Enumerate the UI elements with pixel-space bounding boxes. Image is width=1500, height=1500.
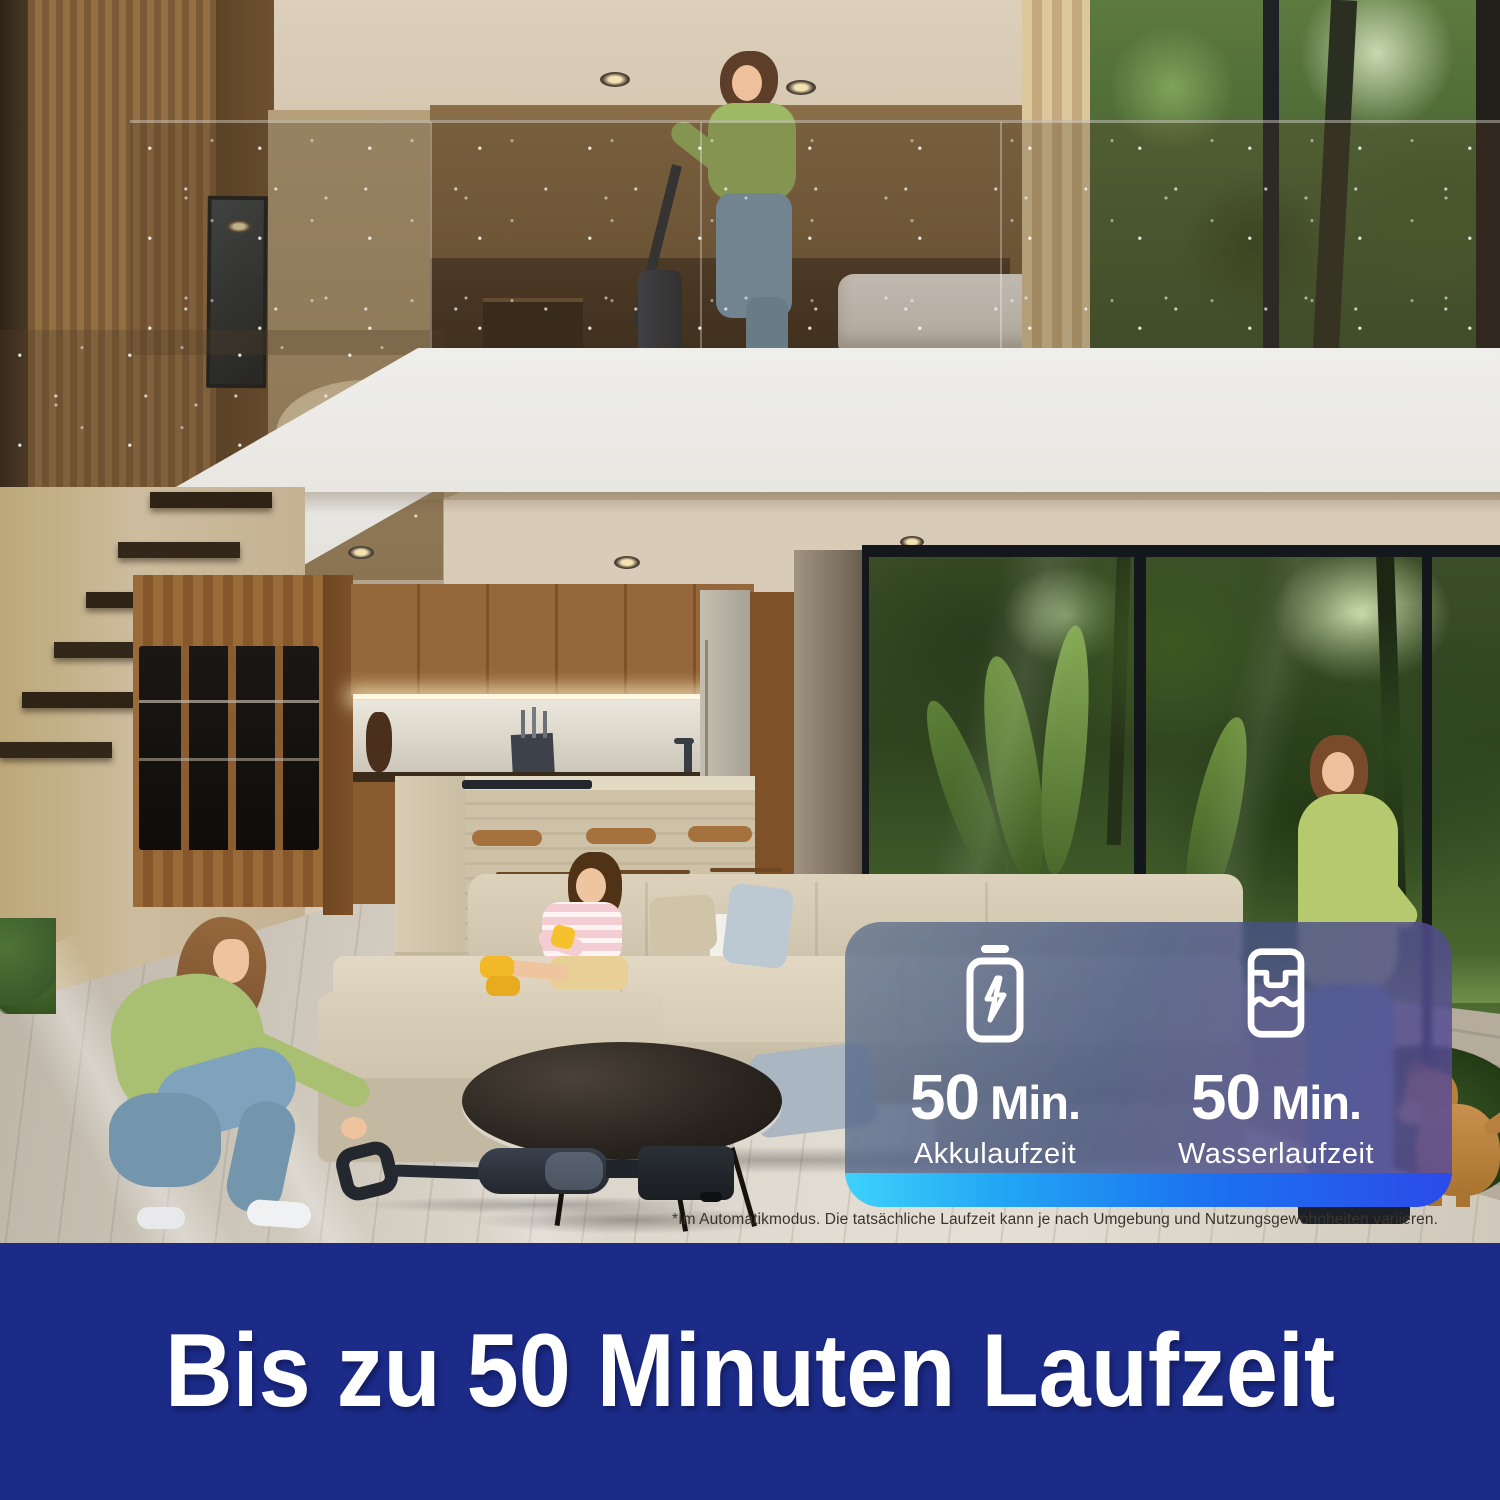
faucet-spout xyxy=(674,738,694,744)
water-tank-icon xyxy=(1245,944,1307,1040)
cooktop xyxy=(462,780,592,789)
water-tank-stat-icon-cell xyxy=(1142,944,1410,1044)
ceiling-light xyxy=(614,556,640,569)
child-sock xyxy=(480,956,514,978)
oven-handle xyxy=(139,700,319,703)
woman-sock xyxy=(137,1207,185,1229)
under-cabinet-led xyxy=(353,694,752,699)
bar-stool xyxy=(586,828,656,844)
woman-face xyxy=(732,65,762,101)
throw-pillow xyxy=(721,882,794,969)
ceiling-light xyxy=(348,546,374,559)
oven-divider xyxy=(228,646,236,850)
battery-runtime-number: 50 xyxy=(910,1061,979,1133)
card-accent-strip xyxy=(845,1173,1452,1207)
bar-stool xyxy=(688,826,752,842)
bar-stool xyxy=(472,830,542,846)
oven-divider xyxy=(275,646,283,850)
knife xyxy=(521,710,525,738)
wood-column xyxy=(323,575,353,915)
stair-tread xyxy=(22,692,144,708)
water-runtime-value: 50Min. xyxy=(1142,1065,1410,1129)
kitchen-vase xyxy=(366,712,392,772)
woman-jeans-hip xyxy=(109,1093,221,1187)
vacuum-neck xyxy=(606,1160,640,1178)
child-on-sofa xyxy=(480,850,650,1010)
battery-stat-icon-cell xyxy=(865,944,1125,1044)
island-end-cap xyxy=(395,776,465,952)
glass-seam xyxy=(430,122,432,350)
oven-divider xyxy=(181,646,189,850)
water-runtime-unit: Min. xyxy=(1271,1076,1361,1129)
woman-crouching xyxy=(95,905,365,1240)
bottom-banner: Bis zu 50 Minuten Laufzeit xyxy=(0,1243,1500,1500)
vacuum-wheel xyxy=(700,1192,722,1202)
battery-icon xyxy=(963,944,1027,1044)
woman-face xyxy=(1322,752,1354,792)
stair-tread xyxy=(0,742,112,758)
oven-handle xyxy=(139,758,319,761)
throw-pillow xyxy=(648,894,718,954)
battery-runtime-unit: Min. xyxy=(990,1076,1080,1129)
upper-cabinets xyxy=(351,584,754,696)
slab-shadow xyxy=(300,492,1500,514)
glass-seam xyxy=(1000,122,1002,350)
product-marketing-image: 50Min. 50Min. Akkulaufzeit Wasserlaufzei… xyxy=(0,0,1500,1500)
runtime-stats-card: 50Min. 50Min. Akkulaufzeit Wasserlaufzei… xyxy=(845,922,1452,1207)
stair-tread xyxy=(150,492,272,508)
water-runtime-label: Wasserlaufzeit xyxy=(1142,1138,1410,1170)
woman-hand xyxy=(341,1117,367,1139)
stair-tread xyxy=(118,542,240,558)
knife xyxy=(532,707,536,738)
battery-runtime-value: 50Min. xyxy=(865,1065,1125,1129)
potted-plant xyxy=(0,918,56,1014)
knife xyxy=(543,711,547,738)
coffee-table xyxy=(462,1042,782,1160)
glass-seam xyxy=(700,122,702,350)
glass-balustrade xyxy=(130,120,1500,355)
vacuum-dust-bin xyxy=(545,1152,603,1190)
child-face xyxy=(576,868,606,904)
glass-frame-top xyxy=(862,545,1500,557)
battery-runtime-label: Akkulaufzeit xyxy=(865,1138,1125,1170)
child-sock xyxy=(486,976,520,996)
banner-headline: Bis zu 50 Minuten Laufzeit xyxy=(165,1312,1335,1431)
sofa-seam xyxy=(815,882,818,962)
woman-sock xyxy=(246,1199,312,1229)
dog-leg xyxy=(1456,1188,1470,1207)
ceiling-light xyxy=(600,72,630,87)
water-runtime-number: 50 xyxy=(1191,1061,1260,1133)
disclaimer-text: *Im Automatikmodus. Die tatsächliche Lau… xyxy=(672,1211,1438,1229)
